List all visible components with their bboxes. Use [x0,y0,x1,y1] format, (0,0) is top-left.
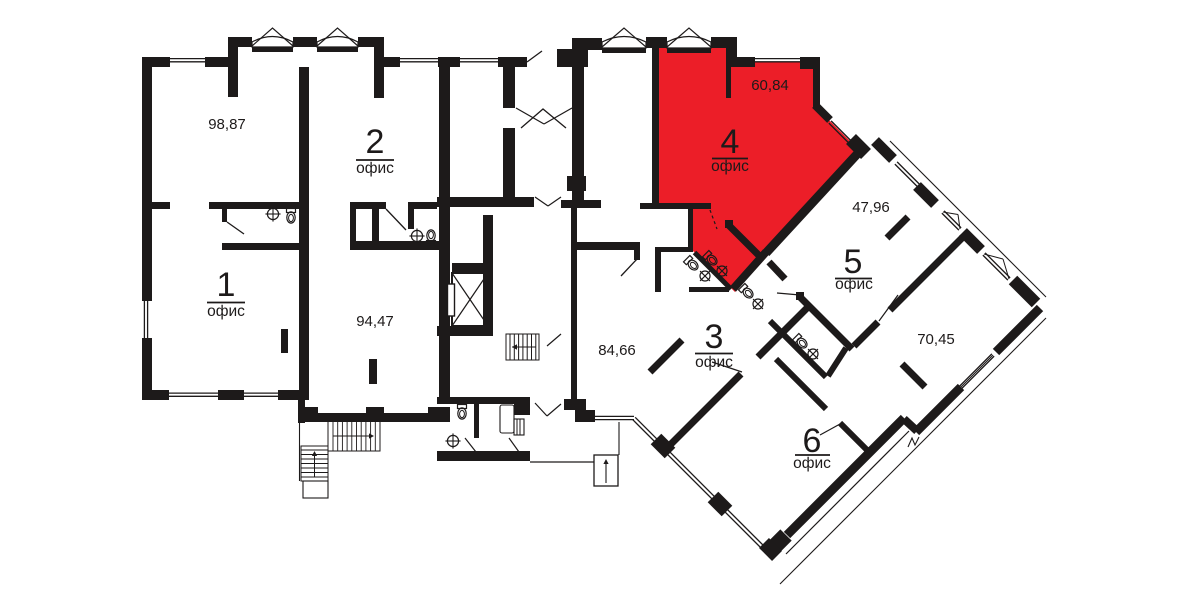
svg-text:47,96: 47,96 [852,199,890,216]
svg-text:офис: офис [793,455,831,472]
svg-text:3: 3 [705,318,724,356]
svg-text:офис: офис [695,354,733,371]
svg-text:98,87: 98,87 [208,116,246,133]
svg-text:офис: офис [711,158,749,175]
svg-text:84,66: 84,66 [598,342,636,359]
svg-text:офис: офис [356,160,394,177]
svg-text:70,45: 70,45 [917,331,955,348]
svg-text:1: 1 [217,266,236,304]
svg-text:офис: офис [207,303,245,320]
svg-text:2: 2 [366,123,385,161]
svg-text:94,47: 94,47 [356,313,394,330]
svg-text:60,84: 60,84 [751,77,789,94]
svg-text:офис: офис [835,276,873,293]
svg-text:4: 4 [721,123,740,161]
